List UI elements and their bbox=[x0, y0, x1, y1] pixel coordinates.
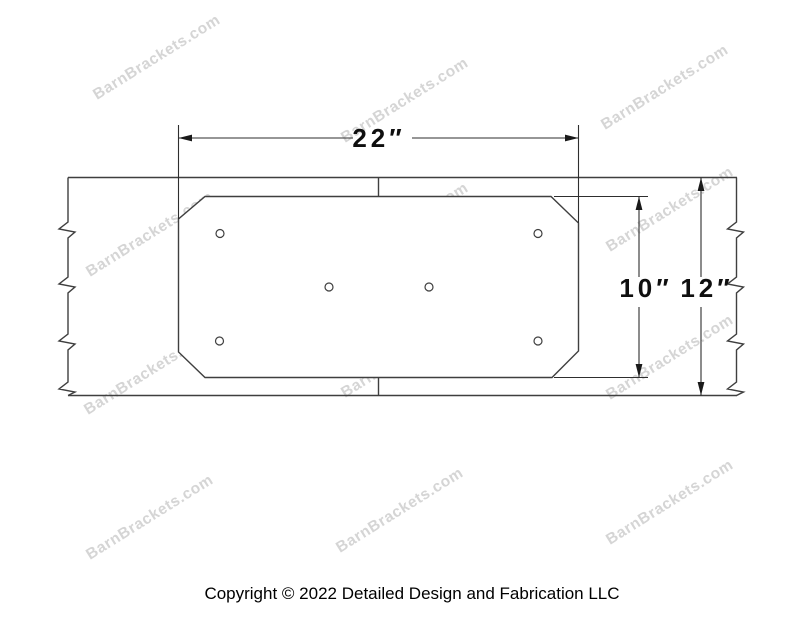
drawing-canvas: BarnBrackets.com BarnBrackets.com BarnBr… bbox=[0, 0, 800, 618]
watermark-text: BarnBrackets.com bbox=[598, 41, 731, 133]
plate-outline bbox=[179, 197, 579, 378]
watermark-text: BarnBrackets.com bbox=[83, 471, 216, 563]
arrowhead-right-icon bbox=[565, 135, 579, 142]
arrowhead-left-icon bbox=[179, 135, 193, 142]
dimension-label-plate-width: 22″ bbox=[352, 123, 405, 153]
watermark-text: BarnBrackets.com bbox=[90, 11, 223, 103]
watermark-text: BarnBrackets.com bbox=[333, 464, 466, 556]
watermark-text: BarnBrackets.com bbox=[603, 456, 736, 548]
arrowhead-down-icon bbox=[698, 382, 705, 396]
copyright-notice: Copyright © 2022 Detailed Design and Fab… bbox=[204, 584, 619, 603]
bracket-plate bbox=[179, 197, 579, 378]
watermark-text: BarnBrackets.com bbox=[603, 311, 736, 403]
dimension-label-plate-height: 10″ bbox=[619, 273, 672, 303]
technical-drawing-page: BarnBrackets.com BarnBrackets.com BarnBr… bbox=[0, 0, 800, 618]
bolt-hole-center-left bbox=[325, 283, 333, 291]
arrowhead-up-icon bbox=[636, 197, 643, 211]
dimension-label-beam-height: 12″ bbox=[680, 273, 733, 303]
beam-left-break-edge bbox=[59, 178, 75, 396]
bolt-hole-bottom-left bbox=[216, 337, 224, 345]
bolt-hole-top-left bbox=[216, 230, 224, 238]
bolt-hole-bottom-right bbox=[534, 337, 542, 345]
dimension-beam-height: 12″ bbox=[680, 178, 733, 396]
bolt-hole-top-right bbox=[534, 230, 542, 238]
bolt-hole-center-right bbox=[425, 283, 433, 291]
